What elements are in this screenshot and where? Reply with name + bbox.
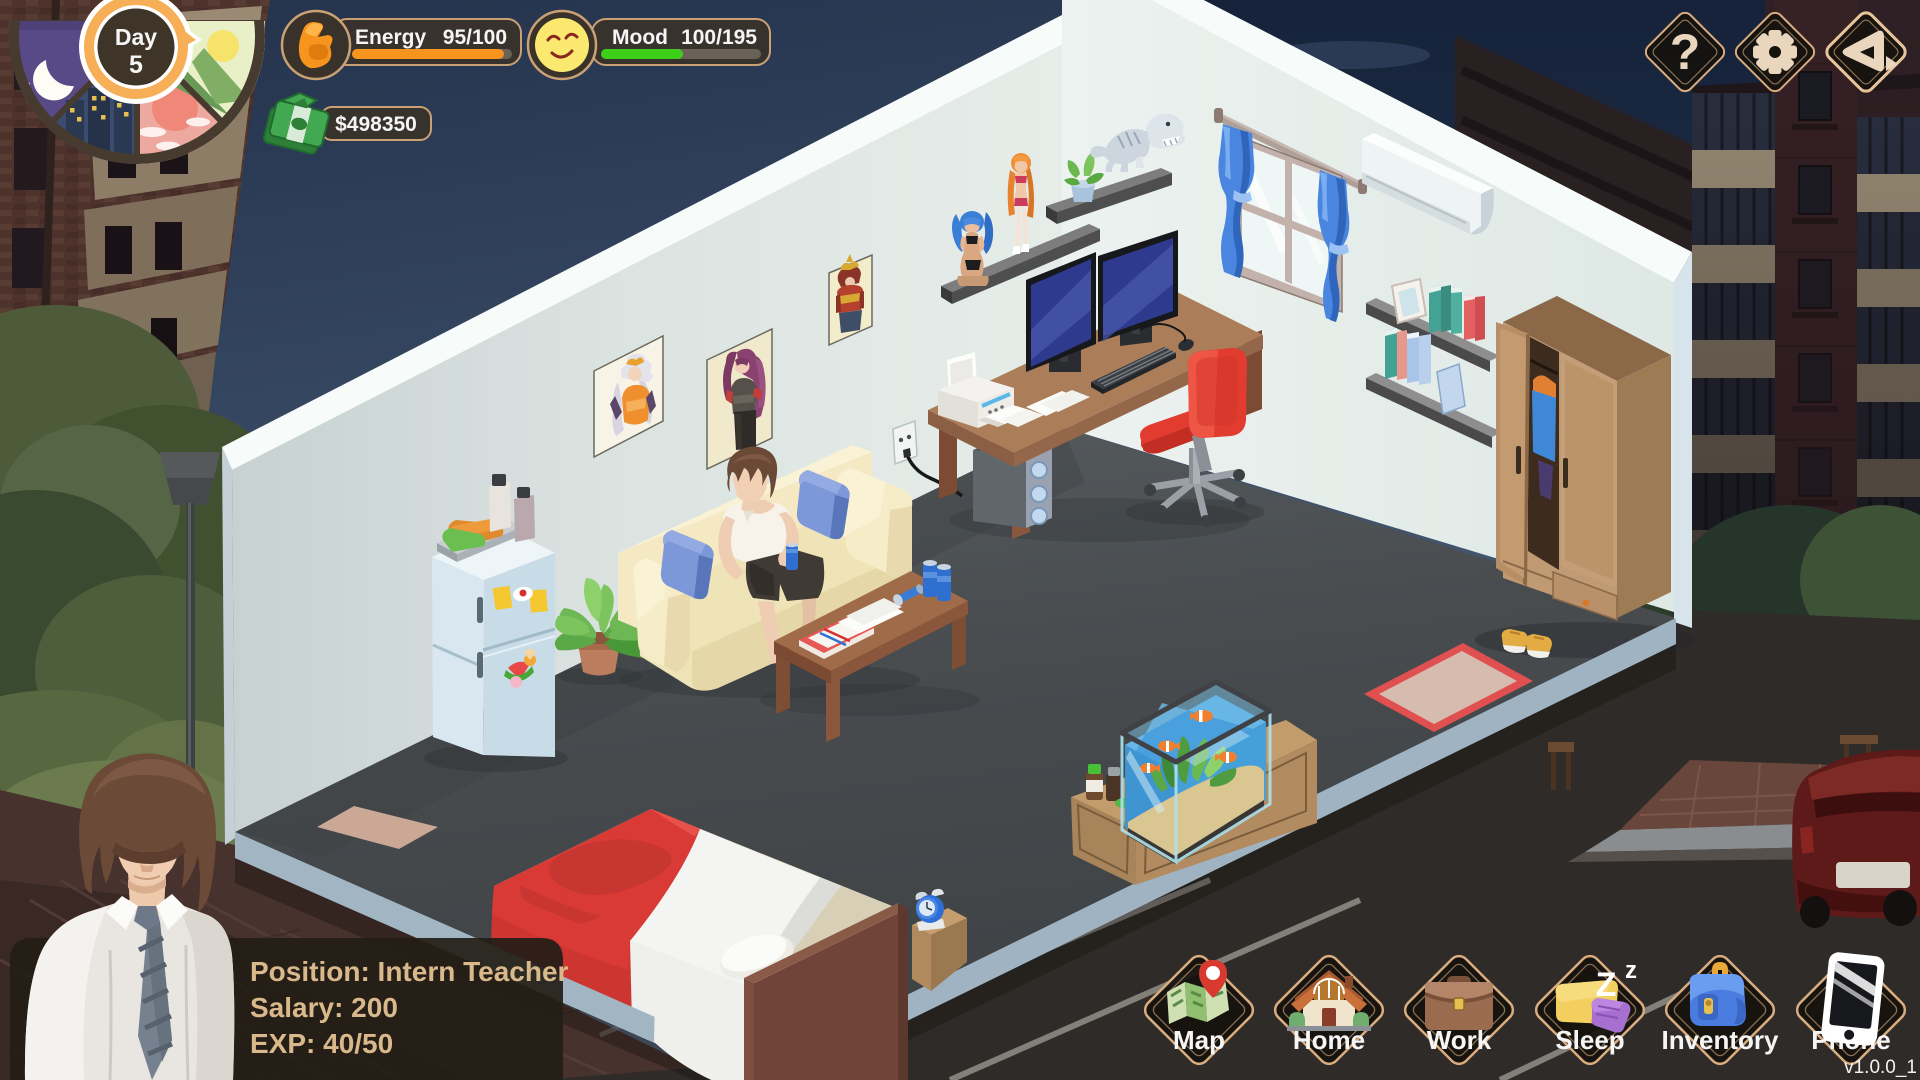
svg-text:$498350: $498350 <box>335 113 417 136</box>
svg-text:100/195: 100/195 <box>681 26 757 49</box>
svg-text:5: 5 <box>129 51 143 79</box>
svg-text:95/100: 95/100 <box>443 26 507 49</box>
svg-text:Salary: 200: Salary: 200 <box>250 992 398 1023</box>
svg-text:Home: Home <box>1293 1025 1365 1055</box>
svg-text:Work: Work <box>1427 1025 1492 1055</box>
svg-text:Sleep: Sleep <box>1555 1025 1624 1055</box>
svg-text:Mood: Mood <box>612 26 668 49</box>
svg-text:Position: Intern Teacher: Position: Intern Teacher <box>250 956 569 987</box>
svg-text:v1.0.0_1: v1.0.0_1 <box>1844 1057 1917 1078</box>
svg-text:Z: Z <box>1596 966 1617 1004</box>
svg-text:?: ? <box>1670 24 1701 80</box>
svg-text:Day: Day <box>115 24 157 50</box>
svg-text:z: z <box>1625 957 1637 984</box>
svg-text:EXP: 40/50: EXP: 40/50 <box>250 1028 393 1059</box>
svg-text:Inventory: Inventory <box>1661 1025 1779 1055</box>
svg-text:Energy: Energy <box>355 26 427 49</box>
svg-text:Map: Map <box>1173 1025 1225 1055</box>
